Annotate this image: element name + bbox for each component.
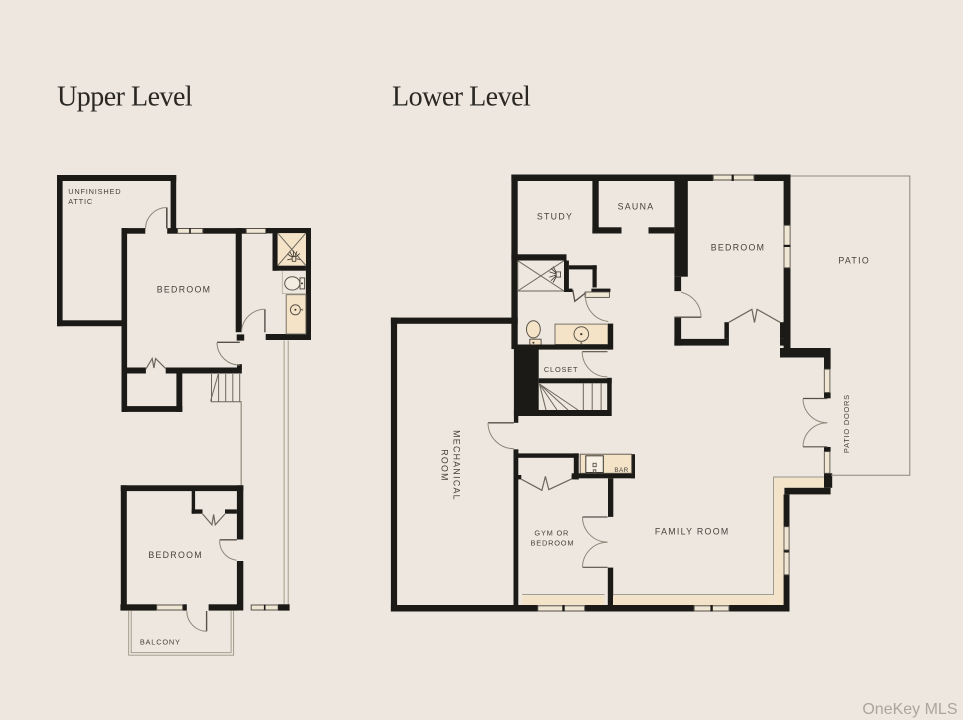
svg-text:BEDROOM: BEDROOM — [148, 550, 203, 560]
svg-text:BAR: BAR — [614, 467, 628, 474]
svg-text:BEDROOM: BEDROOM — [711, 242, 766, 252]
svg-text:FAMILY ROOM: FAMILY ROOM — [655, 527, 730, 537]
svg-text:GYM OR: GYM OR — [534, 529, 569, 538]
svg-text:ATTIC: ATTIC — [68, 197, 93, 206]
svg-text:BEDROOM: BEDROOM — [157, 284, 212, 294]
svg-text:Upper Level: Upper Level — [57, 82, 193, 113]
svg-text:ROOM: ROOM — [440, 449, 450, 482]
svg-text:STUDY: STUDY — [537, 212, 573, 222]
svg-text:BALCONY: BALCONY — [140, 638, 181, 647]
svg-text:BEDROOM: BEDROOM — [531, 539, 575, 548]
svg-text:MECHANICAL: MECHANICAL — [452, 430, 462, 501]
svg-text:PATIO DOORS: PATIO DOORS — [842, 394, 851, 453]
svg-text:SAUNA: SAUNA — [618, 201, 655, 211]
svg-text:PATIO: PATIO — [838, 255, 870, 265]
svg-text:UNFINISHED: UNFINISHED — [68, 187, 121, 196]
svg-text:CLOSET: CLOSET — [544, 365, 578, 374]
svg-text:Lower Level: Lower Level — [392, 82, 531, 113]
svg-text:OneKey MLS: OneKey MLS — [862, 701, 957, 718]
